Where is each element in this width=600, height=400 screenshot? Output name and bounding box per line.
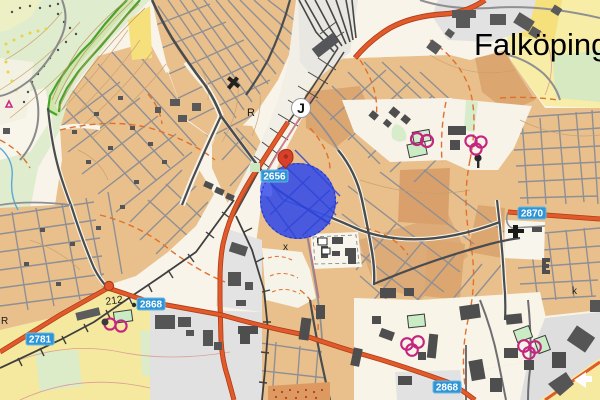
- svg-text:2870: 2870: [521, 209, 544, 220]
- svg-text:2868: 2868: [436, 383, 459, 394]
- svg-text:2781: 2781: [29, 335, 52, 346]
- svg-text:J: J: [297, 100, 305, 116]
- svg-text:2656: 2656: [263, 172, 286, 183]
- svg-text:Falköping: Falköping: [474, 27, 600, 62]
- svg-text:R: R: [247, 107, 255, 119]
- svg-text:2868: 2868: [140, 300, 163, 311]
- svg-text:R: R: [1, 316, 8, 327]
- svg-text:x: x: [283, 242, 288, 253]
- svg-text:212: 212: [105, 294, 124, 308]
